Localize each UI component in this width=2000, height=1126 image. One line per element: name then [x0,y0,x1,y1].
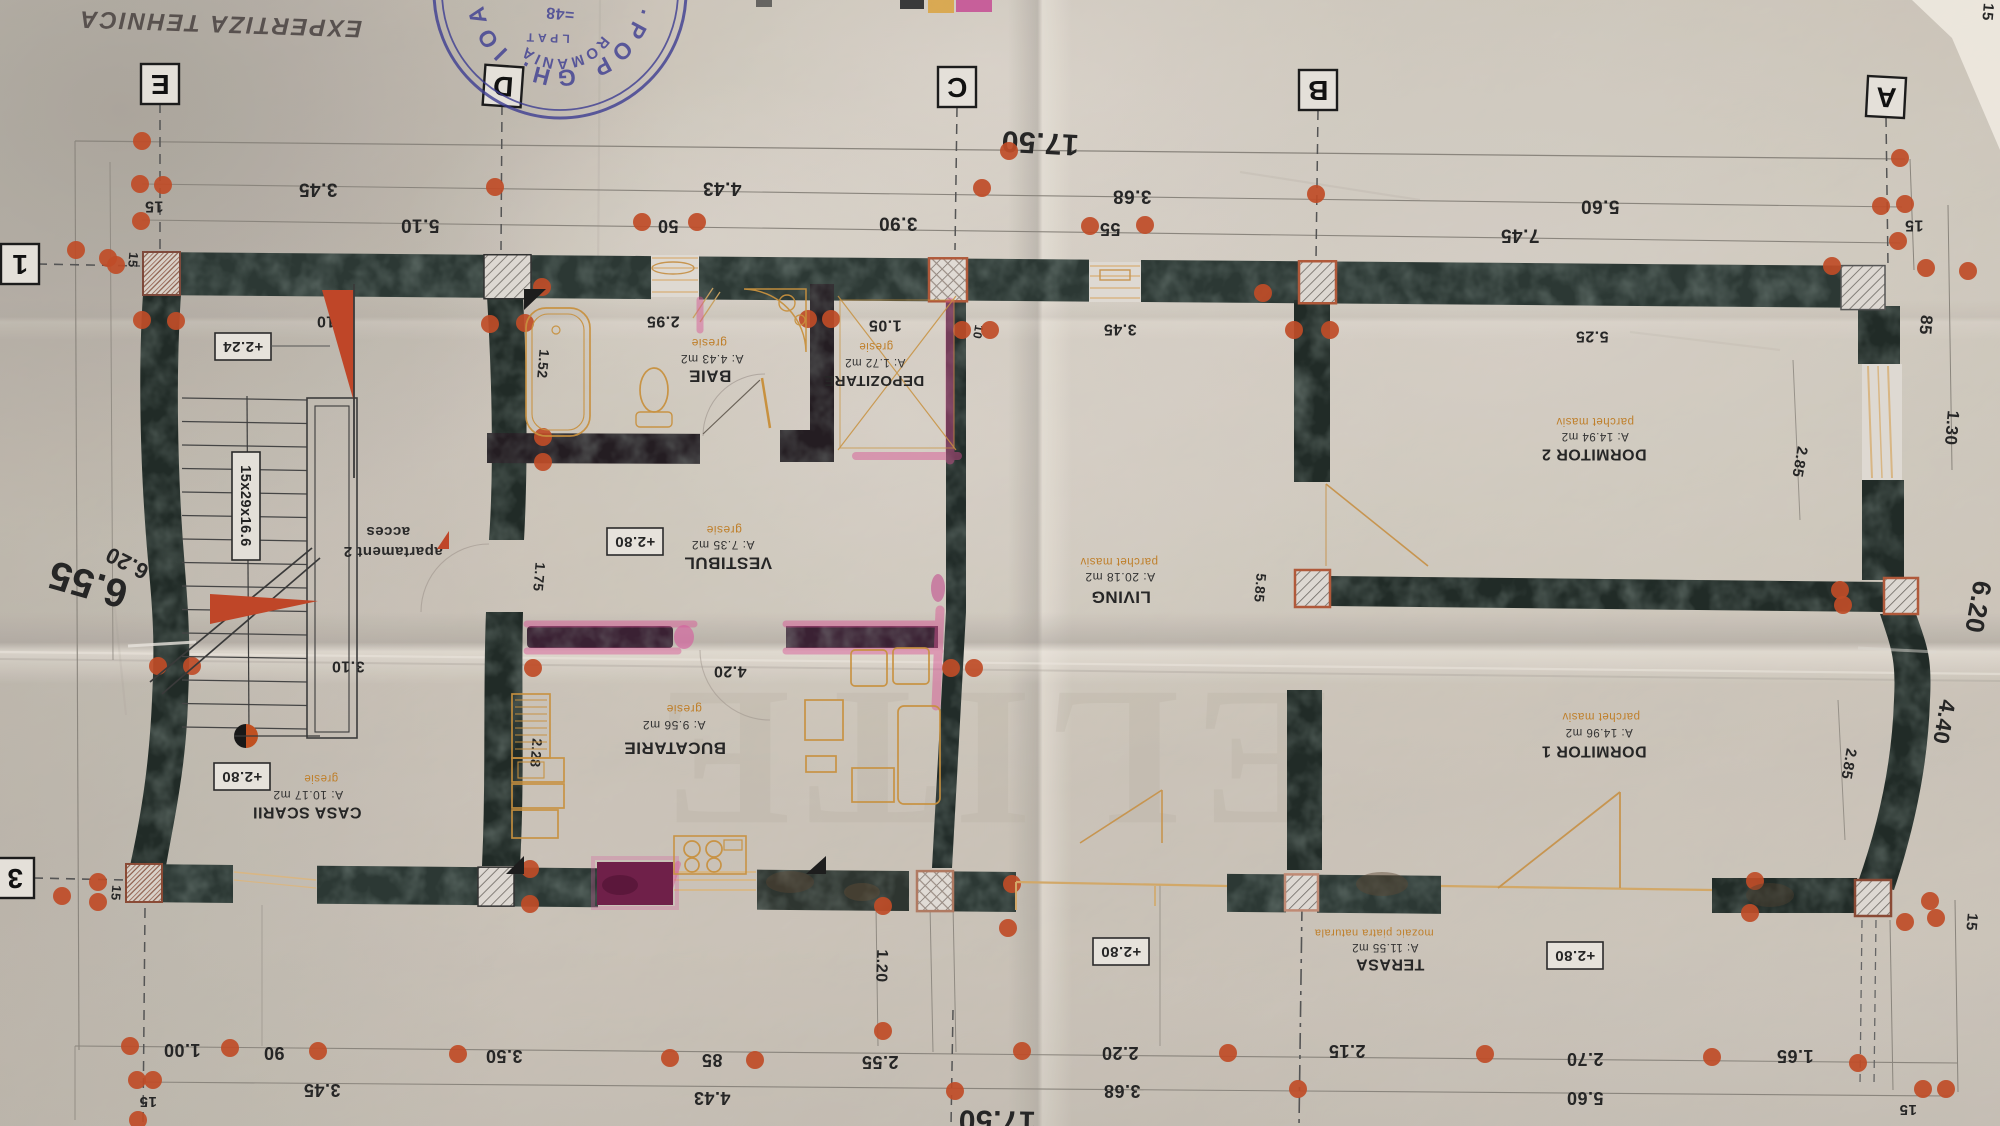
svg-text:parchet masiv: parchet masiv [1080,555,1158,567]
svg-text:gresie: gresie [304,772,338,784]
svg-text:15: 15 [108,885,124,902]
svg-text:3.45: 3.45 [1103,321,1136,338]
svg-text:2.15: 2.15 [1328,1041,1365,1061]
svg-text:1.30: 1.30 [1941,410,1963,447]
svg-text:50: 50 [657,216,678,236]
svg-text:1.65: 1.65 [1776,1046,1813,1066]
svg-text:5.85: 5.85 [1251,573,1269,604]
svg-text:3.68: 3.68 [1113,186,1152,207]
svg-text:A: A [1875,81,1897,113]
svg-text:+2.80: +2.80 [1101,943,1141,960]
svg-text:2.70: 2.70 [1566,1049,1603,1069]
svg-text:3.90: 3.90 [879,213,918,234]
svg-text:C: C [947,72,968,103]
svg-text:5.10: 5.10 [401,215,440,236]
svg-text:3.45: 3.45 [303,1080,340,1100]
svg-text:1.52: 1.52 [534,349,552,380]
svg-text:1.05: 1.05 [868,317,901,334]
svg-text:15: 15 [145,198,164,215]
svg-text:15: 15 [1978,2,1996,21]
svg-text:1.00: 1.00 [163,1040,200,1060]
svg-text:15: 15 [1905,217,1924,234]
svg-text:BUCATARIE: BUCATARIE [624,738,726,757]
svg-text:15: 15 [139,1093,157,1110]
svg-text:5.60: 5.60 [1566,1088,1603,1108]
svg-text:2.95: 2.95 [646,313,679,330]
svg-text:gresie: gresie [859,340,893,352]
svg-text:3.45: 3.45 [299,179,338,200]
svg-text:CASA SCARII: CASA SCARII [253,804,362,821]
svg-text:apartament 2: apartament 2 [343,543,442,560]
svg-text:mozaic piatra naturala: mozaic piatra naturala [1314,926,1434,938]
svg-text:TERASA: TERASA [1356,956,1425,973]
svg-text:B: B [1308,75,1329,106]
svg-text:A: 1.72 m2: A: 1.72 m2 [845,356,906,368]
svg-text:7.45: 7.45 [1501,225,1540,246]
svg-text:A: 14.94 m2: A: 14.94 m2 [1561,430,1629,442]
svg-text:15x29x16.6: 15x29x16.6 [237,465,253,547]
svg-text:=48: =48 [545,3,575,22]
svg-text:+2.80: +2.80 [222,768,262,785]
svg-text:+2.80: +2.80 [1555,947,1595,964]
svg-text:3: 3 [7,863,23,894]
svg-text:A: 4.43 m2: A: 4.43 m2 [680,352,743,366]
svg-text:+2.80: +2.80 [615,533,655,550]
svg-text:1.75: 1.75 [530,562,548,593]
svg-text:4.43: 4.43 [703,178,742,199]
svg-text:parchet masiv: parchet masiv [1556,415,1634,427]
svg-text:15: 15 [1899,1101,1917,1118]
svg-text:gresie: gresie [666,702,702,716]
svg-text:A: 9.56 m2: A: 9.56 m2 [642,718,705,732]
svg-text:2.20: 2.20 [1101,1043,1138,1063]
svg-text:DORMITOR 1: DORMITOR 1 [1541,743,1646,760]
svg-text:1.20: 1.20 [872,949,890,983]
svg-text:A: 11.55 m2: A: 11.55 m2 [1352,941,1419,953]
svg-text:DEPOZITARE: DEPOZITARE [824,372,925,389]
svg-text:A: 7.35 m2: A: 7.35 m2 [691,538,754,552]
svg-text:5.25: 5.25 [1575,328,1608,345]
svg-text:BAIE: BAIE [689,366,732,385]
svg-text:5.60: 5.60 [1581,196,1620,217]
svg-text:LIVING: LIVING [1091,587,1151,606]
svg-text:acces: acces [366,523,410,540]
svg-text:15: 15 [1962,912,1980,931]
svg-text:17.50: 17.50 [958,1103,1036,1126]
svg-text:15: 15 [125,252,141,269]
svg-text:+2.24: +2.24 [223,338,264,355]
svg-text:DORMITOR 2: DORMITOR 2 [1541,446,1646,463]
svg-text:1: 1 [12,249,28,280]
svg-text:parchet masiv: parchet masiv [1562,710,1640,722]
svg-text:90: 90 [263,1043,284,1063]
svg-text:3.68: 3.68 [1103,1081,1140,1101]
svg-text:A: 14.96 m2: A: 14.96 m2 [1565,726,1633,738]
svg-text:55: 55 [1099,219,1120,239]
svg-text:gresie: gresie [691,336,727,350]
svg-text:gresie: gresie [706,523,742,537]
svg-text:L P A T: L P A T [526,30,570,46]
svg-text:85: 85 [1916,314,1937,336]
svg-text:E: E [150,69,169,100]
svg-text:3.50: 3.50 [485,1046,522,1066]
svg-text:3.10: 3.10 [331,658,364,675]
svg-text:VESTIBUL: VESTIBUL [684,553,772,572]
svg-text:4.20: 4.20 [713,663,746,680]
svg-text:A: 20.18 m2: A: 20.18 m2 [1085,570,1155,584]
svg-text:2.55: 2.55 [861,1052,898,1072]
svg-text:85: 85 [701,1050,722,1070]
svg-text:A: 10.17 m2: A: 10.17 m2 [273,788,343,802]
svg-text:4.43: 4.43 [693,1088,730,1108]
